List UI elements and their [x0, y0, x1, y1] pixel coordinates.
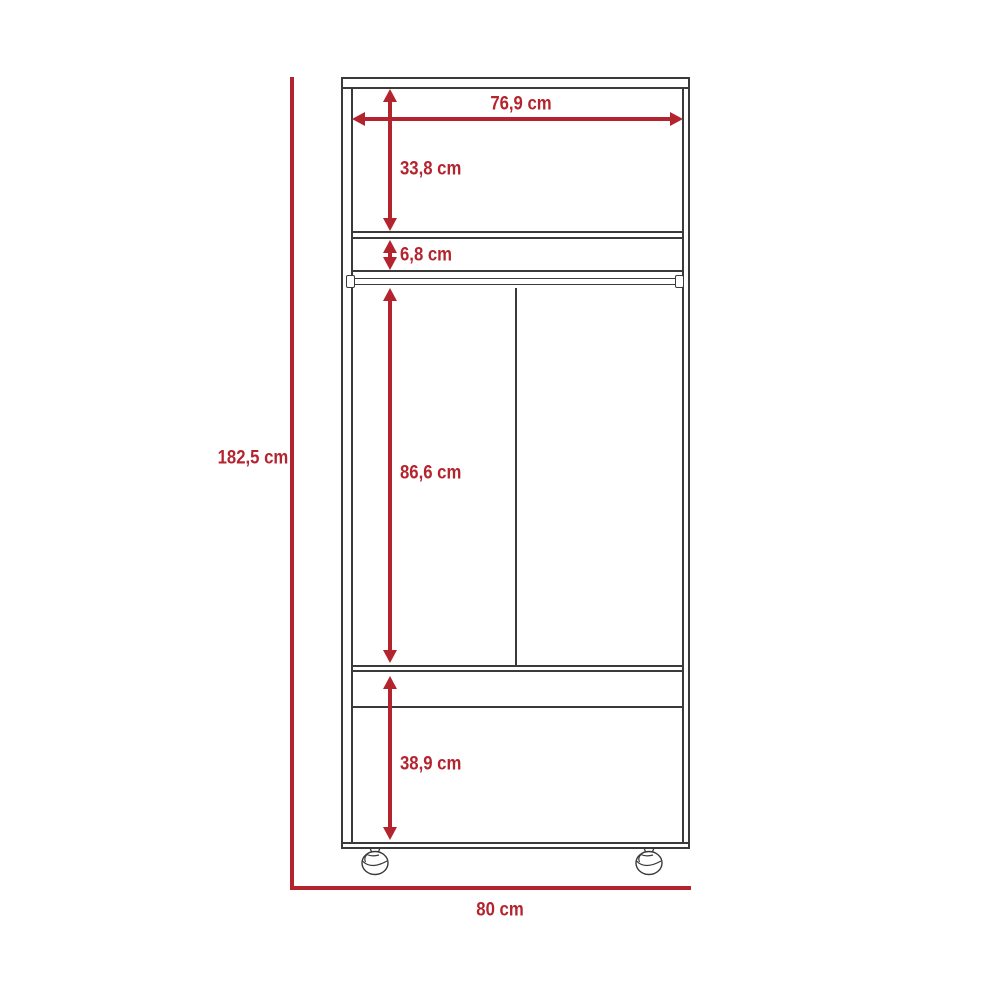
hanging-section-arrowhead-top	[383, 288, 397, 301]
inner-width-arrowhead-right	[670, 112, 683, 126]
hanging-section-arrow-shaft	[388, 299, 392, 653]
top-section-label: 33,8 cm	[400, 160, 461, 179]
hanging-rod-bracket-left	[346, 275, 355, 288]
rod-gap-label: 6,8 cm	[400, 246, 452, 265]
center-divider-line	[515, 288, 517, 665]
height-dimension-line	[290, 77, 294, 890]
dimension-diagram: 76,9 cm 33,8 cm 6,8 cm 86,6 cm 38,9 cm 1…	[0, 0, 1000, 1000]
rod-gap-arrowhead-bottom	[383, 257, 397, 270]
total-width-label: 80 cm	[476, 901, 523, 920]
total-height-label: 182,5 cm	[217, 449, 288, 468]
bottom-section-arrowhead-top	[383, 676, 397, 689]
lower-shelf-line-top	[352, 665, 683, 667]
inner-width-arrowhead-left	[352, 112, 365, 126]
hanging-rod	[354, 278, 676, 285]
inner-width-label: 76,9 cm	[490, 95, 551, 114]
caster-wheel-left	[358, 848, 392, 876]
width-dimension-line	[290, 886, 691, 890]
bottom-section-arrow-shaft	[388, 687, 392, 829]
upper-shelf-line-top	[352, 231, 683, 233]
lower-shelf-line-bottom	[352, 670, 683, 672]
right-side-panel-inner-line	[682, 88, 684, 843]
rod-gap-arrowhead-top	[383, 240, 397, 253]
top-section-arrowhead-bottom	[383, 218, 397, 231]
rod-compartment-shelf-line	[352, 270, 683, 272]
bottom-panel-line	[341, 842, 690, 844]
hanging-rod-bracket-right	[675, 275, 684, 288]
bottom-section-label: 38,9 cm	[400, 755, 461, 774]
caster-wheel-right	[632, 848, 666, 876]
drawer-bottom-line	[352, 706, 683, 708]
inner-width-arrow-shaft	[363, 117, 671, 121]
hanging-section-label: 86,6 cm	[400, 464, 461, 483]
upper-shelf-line-bottom	[352, 237, 683, 239]
hanging-section-arrowhead-bottom	[383, 650, 397, 663]
left-side-panel-inner-line	[351, 88, 353, 843]
top-section-arrow-shaft	[388, 99, 392, 221]
top-section-arrowhead-top	[383, 89, 397, 102]
bottom-section-arrowhead-bottom	[383, 827, 397, 840]
